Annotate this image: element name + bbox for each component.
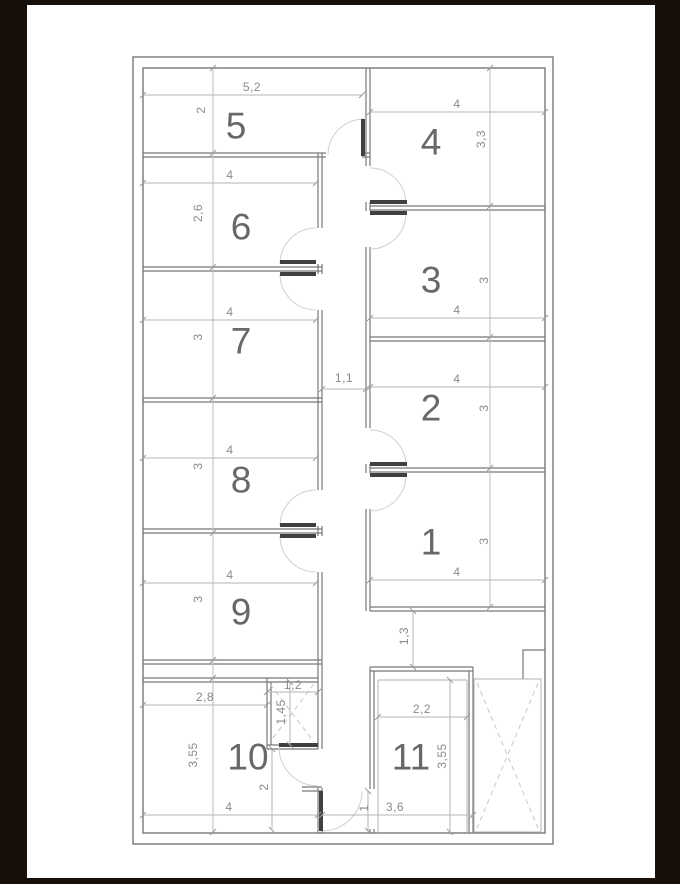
entry-depth-dim: 1 [358, 804, 370, 811]
room-9-width-dim: 4 [226, 569, 233, 581]
room-2-width-dim: 4 [453, 373, 460, 385]
room-9-number: 9 [231, 594, 252, 631]
room-10-top-width-dim: 2,8 [196, 691, 214, 703]
room-7-number: 7 [231, 323, 252, 360]
room-11-top-width-dim: 2,2 [413, 703, 431, 715]
room-7-width-dim: 4 [226, 306, 233, 318]
shaft-width-dim: 1,2 [284, 679, 302, 691]
room-6-width-dim: 4 [226, 169, 233, 181]
room-4-width-dim: 4 [453, 98, 460, 110]
room-8-height-dim: 3 [192, 462, 204, 469]
room-4-number: 4 [421, 124, 442, 161]
room-8-number: 8 [231, 462, 252, 499]
room-10-bottom-width-dim: 4 [225, 801, 232, 813]
hallway-width-dim: 1,3 [398, 627, 410, 645]
room-8-width-dim: 4 [226, 444, 233, 456]
room-6-height-dim: 2,6 [192, 204, 204, 222]
room-3-number: 3 [421, 262, 442, 299]
room-2-number: 2 [421, 390, 442, 427]
room-4-height-dim: 3,3 [475, 130, 487, 148]
room-1-width-dim: 4 [453, 566, 460, 578]
paper-sheet [27, 5, 655, 878]
room-9-height-dim: 3 [192, 595, 204, 602]
room-6-number: 6 [231, 209, 252, 246]
corridor-width-dim: 1,1 [335, 372, 353, 384]
room-7-height-dim: 3 [192, 333, 204, 340]
room-1-number: 1 [421, 524, 442, 561]
room-11-number: 11 [392, 739, 430, 776]
room-5-height-dim: 2 [195, 106, 207, 113]
room-2-height-dim: 3 [478, 404, 490, 411]
floorplan-drawing [0, 0, 680, 884]
shaft-depth-dim: 1,45 [275, 699, 287, 724]
room-5-width-dim: 5,2 [243, 81, 261, 93]
room-1-height-dim: 3 [478, 537, 490, 544]
room-11-height-dim: 3,55 [436, 743, 448, 768]
room-3-width-dim: 4 [453, 304, 460, 316]
room-5-number: 5 [226, 108, 247, 145]
room-10-height-dim: 3,55 [187, 742, 199, 767]
room-3-height-dim: 3 [478, 276, 490, 283]
room-10-right-height-dim: 2 [258, 783, 270, 790]
room-11-bottom-width-dim: 3,6 [386, 801, 404, 813]
floorplan-page: 1 2 3 4 5 6 7 8 9 10 11 5,2 4 4 4 4 2,8 … [0, 0, 680, 884]
room-10-number: 10 [227, 739, 268, 776]
